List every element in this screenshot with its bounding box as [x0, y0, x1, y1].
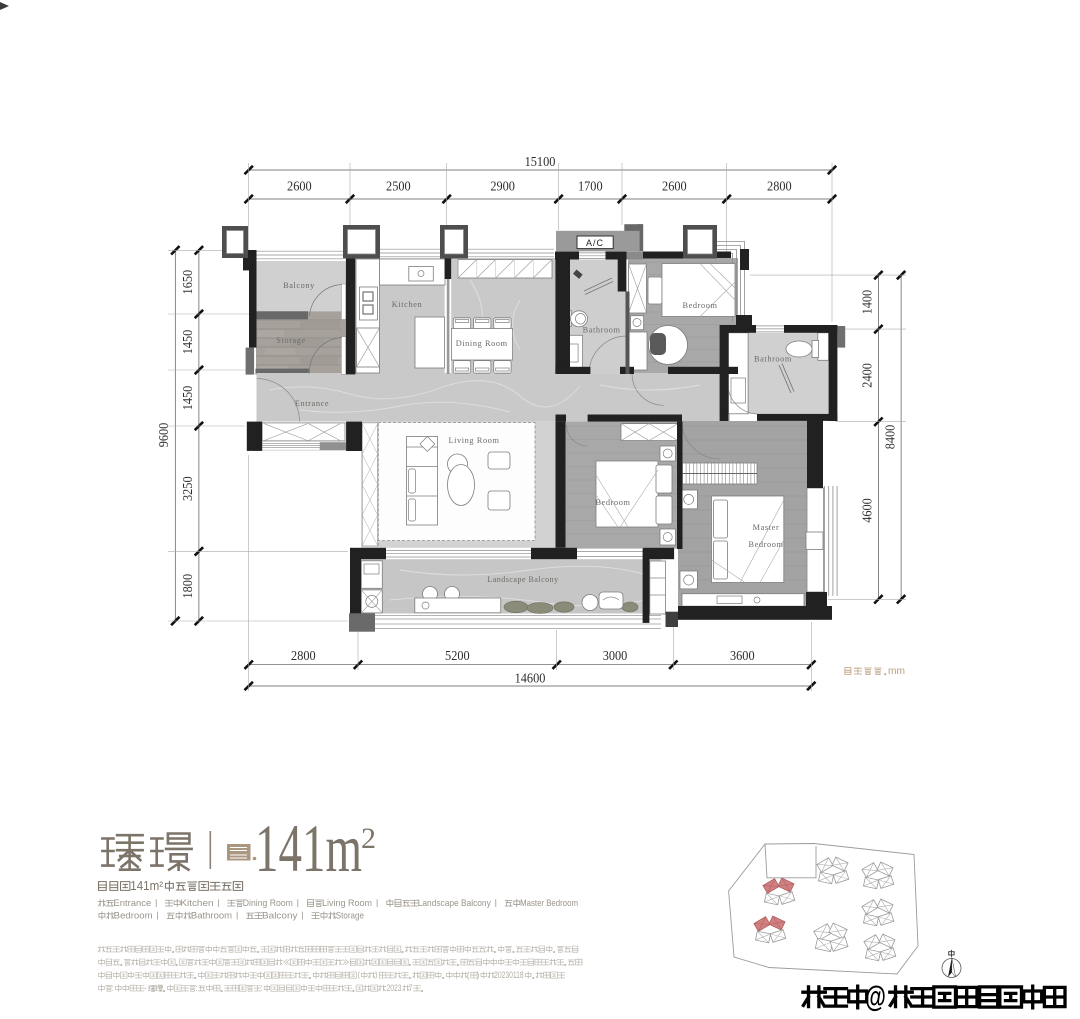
svg-text:Balcony: Balcony: [283, 281, 315, 290]
svg-text:Storage: Storage: [276, 336, 306, 345]
svg-text:2600: 2600: [662, 180, 687, 195]
svg-text:@: @: [865, 981, 886, 1014]
svg-text:Storage: Storage: [336, 911, 364, 921]
svg-text:2600: 2600: [287, 180, 312, 195]
svg-text:141m: 141m: [255, 810, 362, 886]
svg-text:Bathroom: Bathroom: [583, 326, 621, 335]
svg-text:Dining Room: Dining Room: [456, 339, 508, 348]
svg-text:8400: 8400: [884, 425, 899, 450]
svg-text:Dining Room: Dining Room: [243, 898, 293, 908]
svg-text:3000: 3000: [603, 649, 628, 664]
svg-text:Entrance: Entrance: [295, 399, 329, 408]
svg-text:·: ·: [144, 983, 148, 993]
svg-text:Bathroom: Bathroom: [754, 355, 792, 364]
svg-text:Bedroom: Bedroom: [682, 301, 717, 310]
svg-text:2800: 2800: [291, 649, 316, 664]
svg-text:4600: 4600: [861, 498, 876, 523]
svg-text:Living Room: Living Room: [448, 436, 499, 445]
svg-text:Living Room: Living Room: [322, 898, 372, 908]
svg-text:Bedroom: Bedroom: [114, 911, 153, 921]
svg-text:9600: 9600: [157, 423, 172, 448]
svg-text:Landscape Balcony: Landscape Balcony: [487, 575, 558, 584]
svg-text:1400: 1400: [861, 290, 876, 315]
svg-text:Landscape Balcony: Landscape Balcony: [418, 898, 491, 908]
svg-text:1450: 1450: [181, 330, 196, 355]
svg-text:5200: 5200: [445, 649, 470, 664]
svg-text:): ): [477, 970, 479, 980]
svg-text:Entrance: Entrance: [113, 898, 151, 908]
svg-text:2400: 2400: [861, 363, 876, 388]
svg-text:141m²: 141m²: [130, 878, 163, 893]
svg-text:A/C: A/C: [586, 238, 604, 248]
svg-text:7: 7: [409, 983, 413, 993]
svg-text::: :: [260, 983, 262, 993]
svg-text:1800: 1800: [181, 574, 196, 599]
svg-text:Master: Master: [753, 523, 780, 532]
svg-text:2800: 2800: [767, 180, 792, 195]
svg-text::2023: :2023: [385, 983, 402, 993]
svg-text:Kitchen: Kitchen: [392, 300, 423, 309]
svg-text:Bedroom: Bedroom: [595, 498, 630, 507]
svg-text:2900: 2900: [490, 180, 515, 195]
svg-text:20230118: 20230118: [494, 970, 524, 980]
svg-text:mm: mm: [888, 666, 905, 677]
svg-text:3600: 3600: [730, 649, 755, 664]
svg-text:Master Bedroom: Master Bedroom: [520, 898, 578, 908]
svg-text::: :: [112, 983, 114, 993]
svg-text:3250: 3250: [181, 476, 196, 501]
svg-text:2500: 2500: [386, 180, 411, 195]
svg-text:1650: 1650: [181, 270, 196, 295]
svg-text:Kitchen: Kitchen: [180, 898, 213, 908]
svg-text:Bedroom: Bedroom: [748, 540, 783, 549]
svg-text:Balcony: Balcony: [262, 911, 298, 921]
svg-text:14600: 14600: [515, 672, 546, 687]
svg-text:15100: 15100: [525, 155, 556, 170]
svg-text:Bathroom: Bathroom: [191, 911, 233, 921]
svg-text:1700: 1700: [578, 180, 603, 195]
svg-text:1450: 1450: [181, 386, 196, 411]
svg-text::: :: [195, 983, 197, 993]
svg-text:(: (: [467, 970, 469, 980]
svg-text:2: 2: [361, 822, 376, 855]
